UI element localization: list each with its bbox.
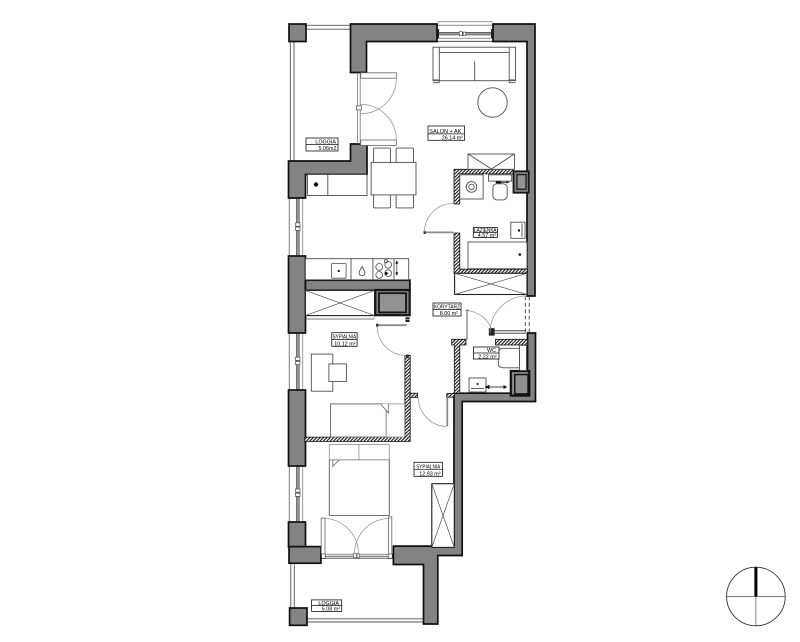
svg-text:5.06m2: 5.06m2 (319, 146, 337, 152)
svg-text:2.22 m²: 2.22 m² (478, 354, 496, 360)
svg-text:SALON + AK: SALON + AK (429, 129, 461, 135)
svg-text:SYPIALNIA: SYPIALNIA (333, 335, 357, 341)
svg-text:10.12 m²: 10.12 m² (334, 342, 355, 348)
svg-text:KORYTARZ: KORYTARZ (434, 305, 461, 311)
svg-text:SYPIALNIA: SYPIALNIA (416, 464, 440, 470)
svg-text:8.00 m²: 8.00 m² (440, 311, 458, 317)
svg-text:4.57 m²: 4.57 m² (478, 233, 496, 239)
svg-text:WC: WC (487, 348, 496, 354)
svg-text:12.93 m²: 12.93 m² (419, 471, 440, 477)
svg-text:26.14 m²: 26.14 m² (442, 136, 463, 142)
svg-text:LOGGIA: LOGGIA (315, 139, 336, 145)
svg-text:5.08 m²: 5.08 m² (322, 607, 340, 613)
